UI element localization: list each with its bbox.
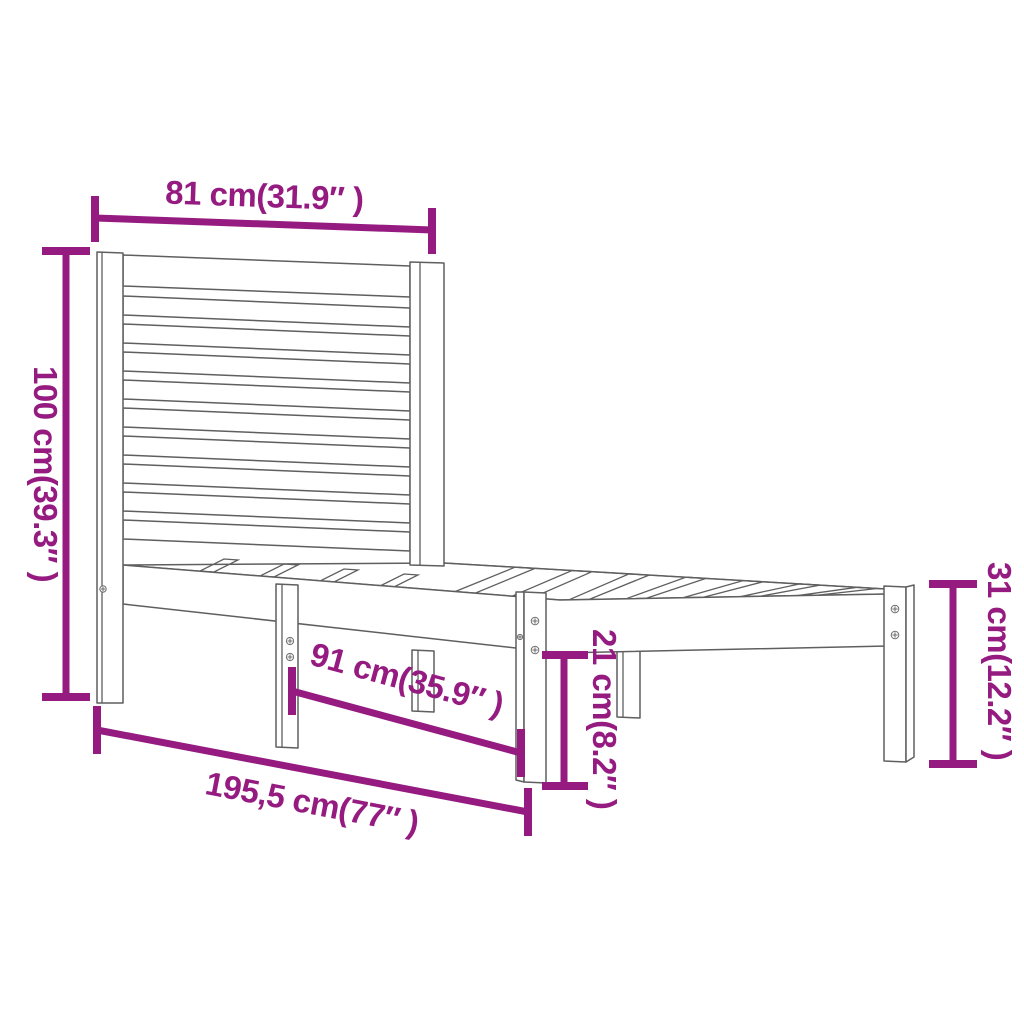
screw-icon <box>531 617 539 625</box>
front-leg-head-end <box>276 584 298 748</box>
dimension-label-headboard-width: 81 cm(31.9″ ) <box>165 174 364 218</box>
headboard-slats <box>123 296 410 551</box>
screw-icon <box>891 605 899 613</box>
bed-frame-dimension-diagram: 81 cm(31.9″ ) 100 cm(39.3″ ) 91 cm(35.9″… <box>0 0 1024 1024</box>
dimension-label-headboard-height: 100 cm(39.3″ ) <box>27 366 64 582</box>
dimension-label-frame-height: 31 cm(12.2″ ) <box>981 562 1018 760</box>
foot-corner-leg <box>884 585 914 762</box>
headboard-left-post <box>97 252 123 703</box>
screw-icon <box>286 653 293 660</box>
screw-icon <box>517 634 522 639</box>
dimension-label-underbed-height: 21 cm(8.2″ ) <box>586 629 623 809</box>
headboard-right-post <box>410 262 444 566</box>
screw-icon <box>531 646 539 654</box>
screw-icon <box>100 586 106 592</box>
screw-icon <box>891 631 899 639</box>
screw-icon <box>286 637 293 644</box>
